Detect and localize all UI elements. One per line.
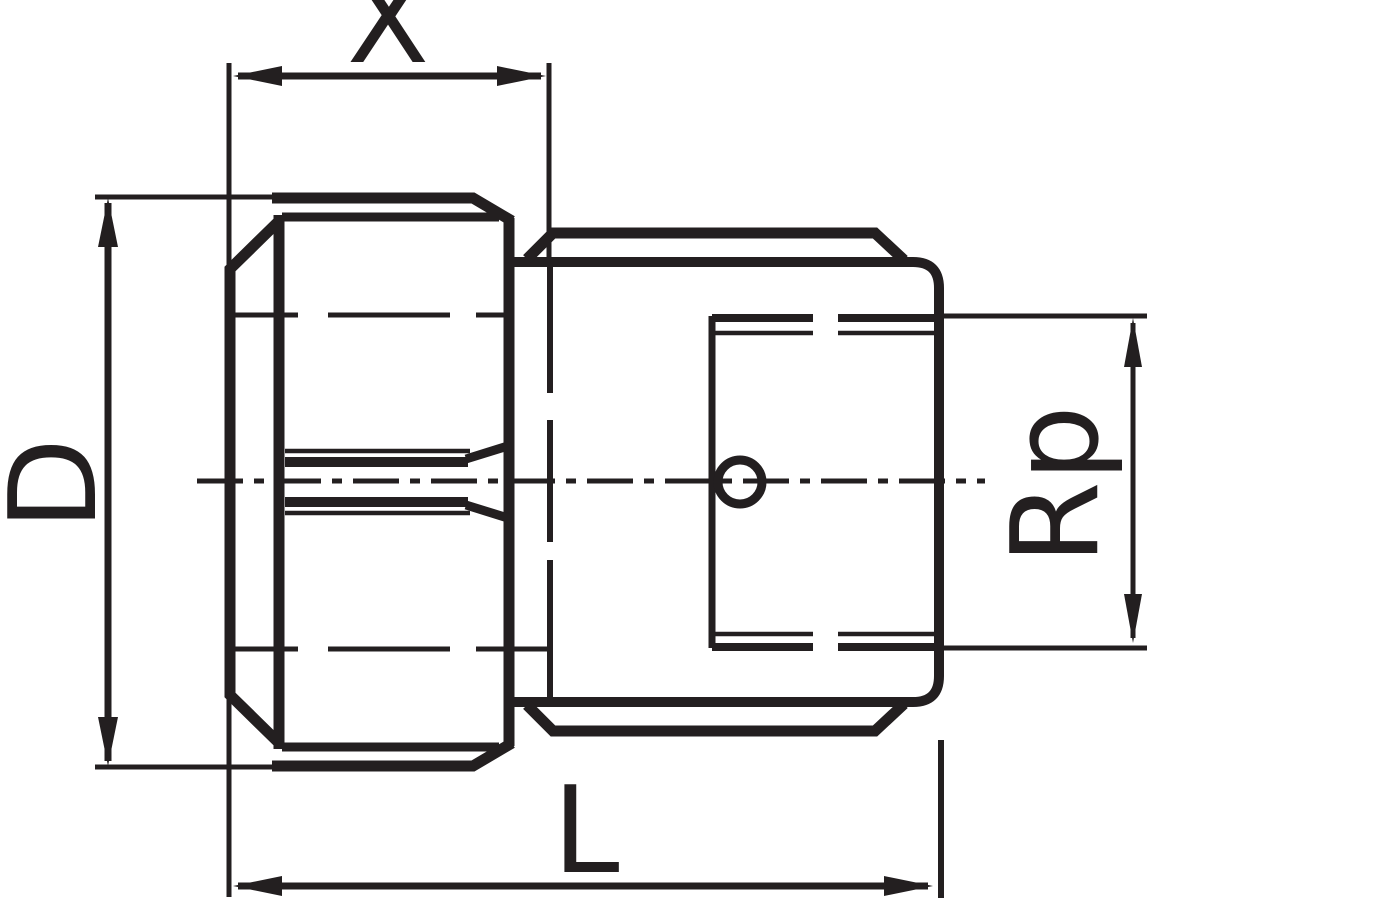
arrowhead-x-left <box>233 66 282 86</box>
dimension-l-label: L <box>553 762 620 900</box>
dimension-d-label: D <box>0 438 124 530</box>
technical-drawing: X D L Rp <box>0 0 1400 900</box>
arrowhead-d-top <box>98 198 118 247</box>
dimension-x-label: X <box>347 0 429 91</box>
arrowhead-x-right <box>497 66 546 86</box>
arrowhead-l-right <box>884 876 933 896</box>
arrowhead-l-left <box>233 876 282 896</box>
arrowhead-rp-bottom <box>1124 594 1142 643</box>
dimension-rp-label: Rp <box>987 405 1126 565</box>
arrowhead-rp-top <box>1124 318 1142 367</box>
fitting-drawing-svg: X D L Rp <box>0 0 1400 900</box>
arrowhead-d-bottom <box>98 717 118 766</box>
